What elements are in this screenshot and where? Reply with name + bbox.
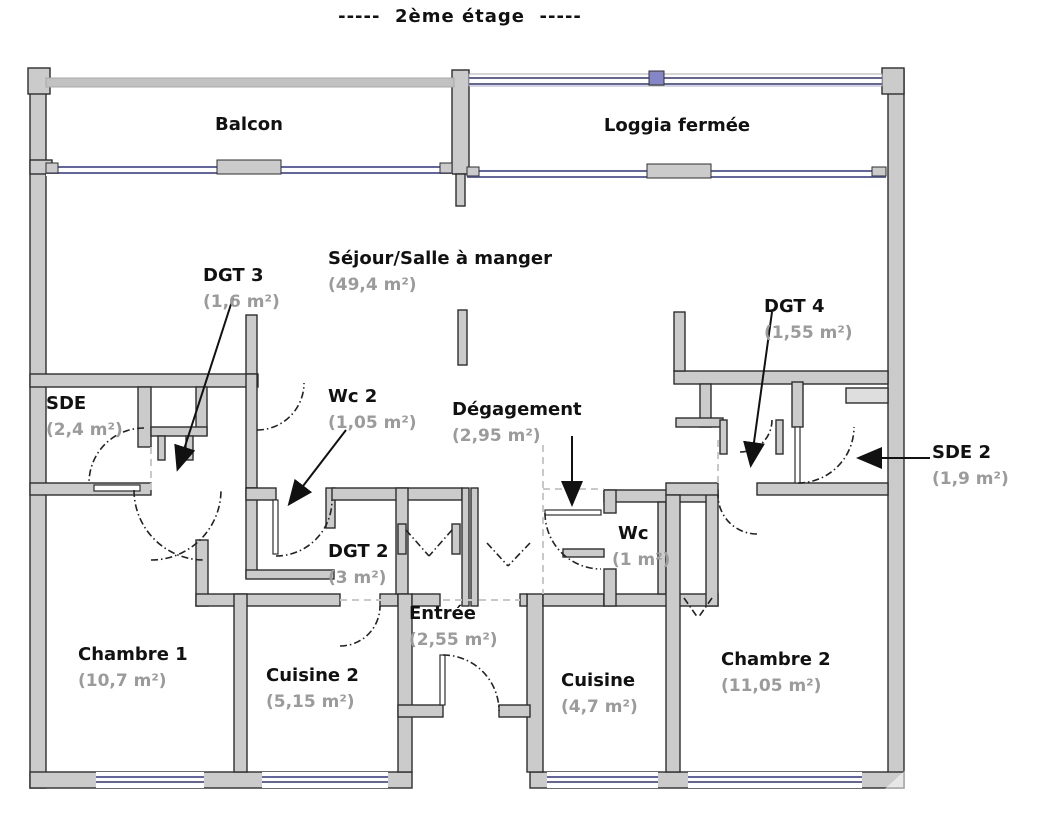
room-area: (2,4 m²): [46, 417, 123, 443]
room-area: (2,95 m²): [452, 423, 582, 449]
room-name: Balcon: [189, 112, 309, 138]
interior-walls: [30, 310, 888, 772]
room-area: (3 m²): [328, 565, 388, 591]
wc2-door-arc: [276, 500, 332, 556]
room-name: DGT 2: [328, 539, 388, 565]
room-label-cuisine: Cuisine (4,7 m²): [561, 668, 638, 720]
room-name: Chambre 1: [78, 642, 188, 668]
wc-door-arc: [545, 513, 601, 569]
room-label-chambre2: Chambre 2 (11,05 m²): [721, 647, 831, 699]
room-label-balcon: Balcon: [189, 112, 309, 138]
room-name: Séjour/Salle à manger: [328, 246, 552, 272]
room-area: (2,55 m²): [409, 627, 498, 653]
room-name: Cuisine 2: [266, 663, 359, 689]
sejour-pier: [458, 310, 467, 365]
cuisine2-top-wall: [196, 594, 340, 606]
room-area: (49,4 m²): [328, 272, 552, 298]
cuisine2-door-arc: [340, 606, 380, 646]
room-area: (11,05 m²): [721, 673, 831, 699]
room-name: SDE: [46, 391, 123, 417]
room-name: Cuisine: [561, 668, 638, 694]
room-area: (4,7 m²): [561, 694, 638, 720]
sde2-door-arc: [798, 427, 854, 483]
balcon-railing: [46, 78, 454, 87]
sejour-divider-left: [30, 374, 258, 387]
room-area: (5,15 m²): [266, 689, 359, 715]
closet-doors-2: [487, 543, 530, 566]
sde-right-wall: [138, 387, 151, 447]
room-name: Loggia fermée: [577, 113, 777, 139]
room-area: (1 m²): [612, 547, 670, 573]
room-label-loggia: Loggia fermée: [577, 113, 777, 139]
room-label-wc2: Wc 2 (1,05 m²): [328, 384, 417, 436]
room-label-sde2: SDE 2 (1,9 m²): [932, 440, 1009, 492]
dgt3-door-arc: [151, 490, 221, 560]
room-label-cuisine2: Cuisine 2 (5,15 m²): [266, 663, 359, 715]
room-label-degagement: Dégagement (2,95 m²): [452, 397, 582, 449]
room-area: (10,7 m²): [78, 668, 188, 694]
room-label-sde: SDE (2,4 m²): [46, 391, 123, 443]
room-area: (1,6 m²): [203, 289, 280, 315]
chambre2-door-arc: [718, 495, 757, 534]
sejour-door-arc: [257, 383, 304, 430]
room-name: Wc 2: [328, 384, 417, 410]
room-name: DGT 3: [203, 263, 280, 289]
floor-plan: ----- 2ème étage ----- Balcon Loggia fer…: [0, 0, 1044, 832]
room-label-entree: Entrée (2,55 m²): [409, 601, 498, 653]
room-label-dgt2: DGT 2 (3 m²): [328, 539, 388, 591]
room-name: Dégagement: [452, 397, 582, 423]
room-area: (1,9 m²): [932, 466, 1009, 492]
room-name: SDE 2: [932, 440, 1009, 466]
room-label-chambre1: Chambre 1 (10,7 m²): [78, 642, 188, 694]
cuisine-top-wall: [543, 594, 604, 606]
room-name: Wc: [612, 521, 670, 547]
floor-title: ----- 2ème étage -----: [240, 6, 680, 27]
entree-right-wall: [527, 594, 543, 772]
left-wall: [30, 70, 46, 788]
wc-box-bottom: [604, 594, 718, 606]
sejour-divider-right: [674, 371, 888, 384]
balcon-loggia-pier: [452, 70, 469, 174]
chambre1-door-arc: [134, 490, 204, 560]
room-label-wc: Wc (1 m²): [612, 521, 670, 573]
right-wall: [888, 70, 904, 788]
room-label-dgt3: DGT 3 (1,6 m²): [203, 263, 280, 315]
room-label-sejour: Séjour/Salle à manger (49,4 m²): [328, 246, 552, 298]
shelves: [94, 485, 140, 491]
entree-door-arc: [443, 655, 499, 711]
room-area: (1,05 m²): [328, 410, 417, 436]
room-name: Entrée: [409, 601, 498, 627]
room-name: DGT 4: [764, 294, 853, 320]
room-boundary-dashes: [151, 440, 718, 600]
closet-doors-1: [406, 530, 452, 556]
room-name: Chambre 2: [721, 647, 831, 673]
room-area: (1,55 m²): [764, 320, 853, 346]
chambre1-cuisine2-wall: [234, 594, 247, 772]
room-label-dgt4: DGT 4 (1,55 m²): [764, 294, 853, 346]
